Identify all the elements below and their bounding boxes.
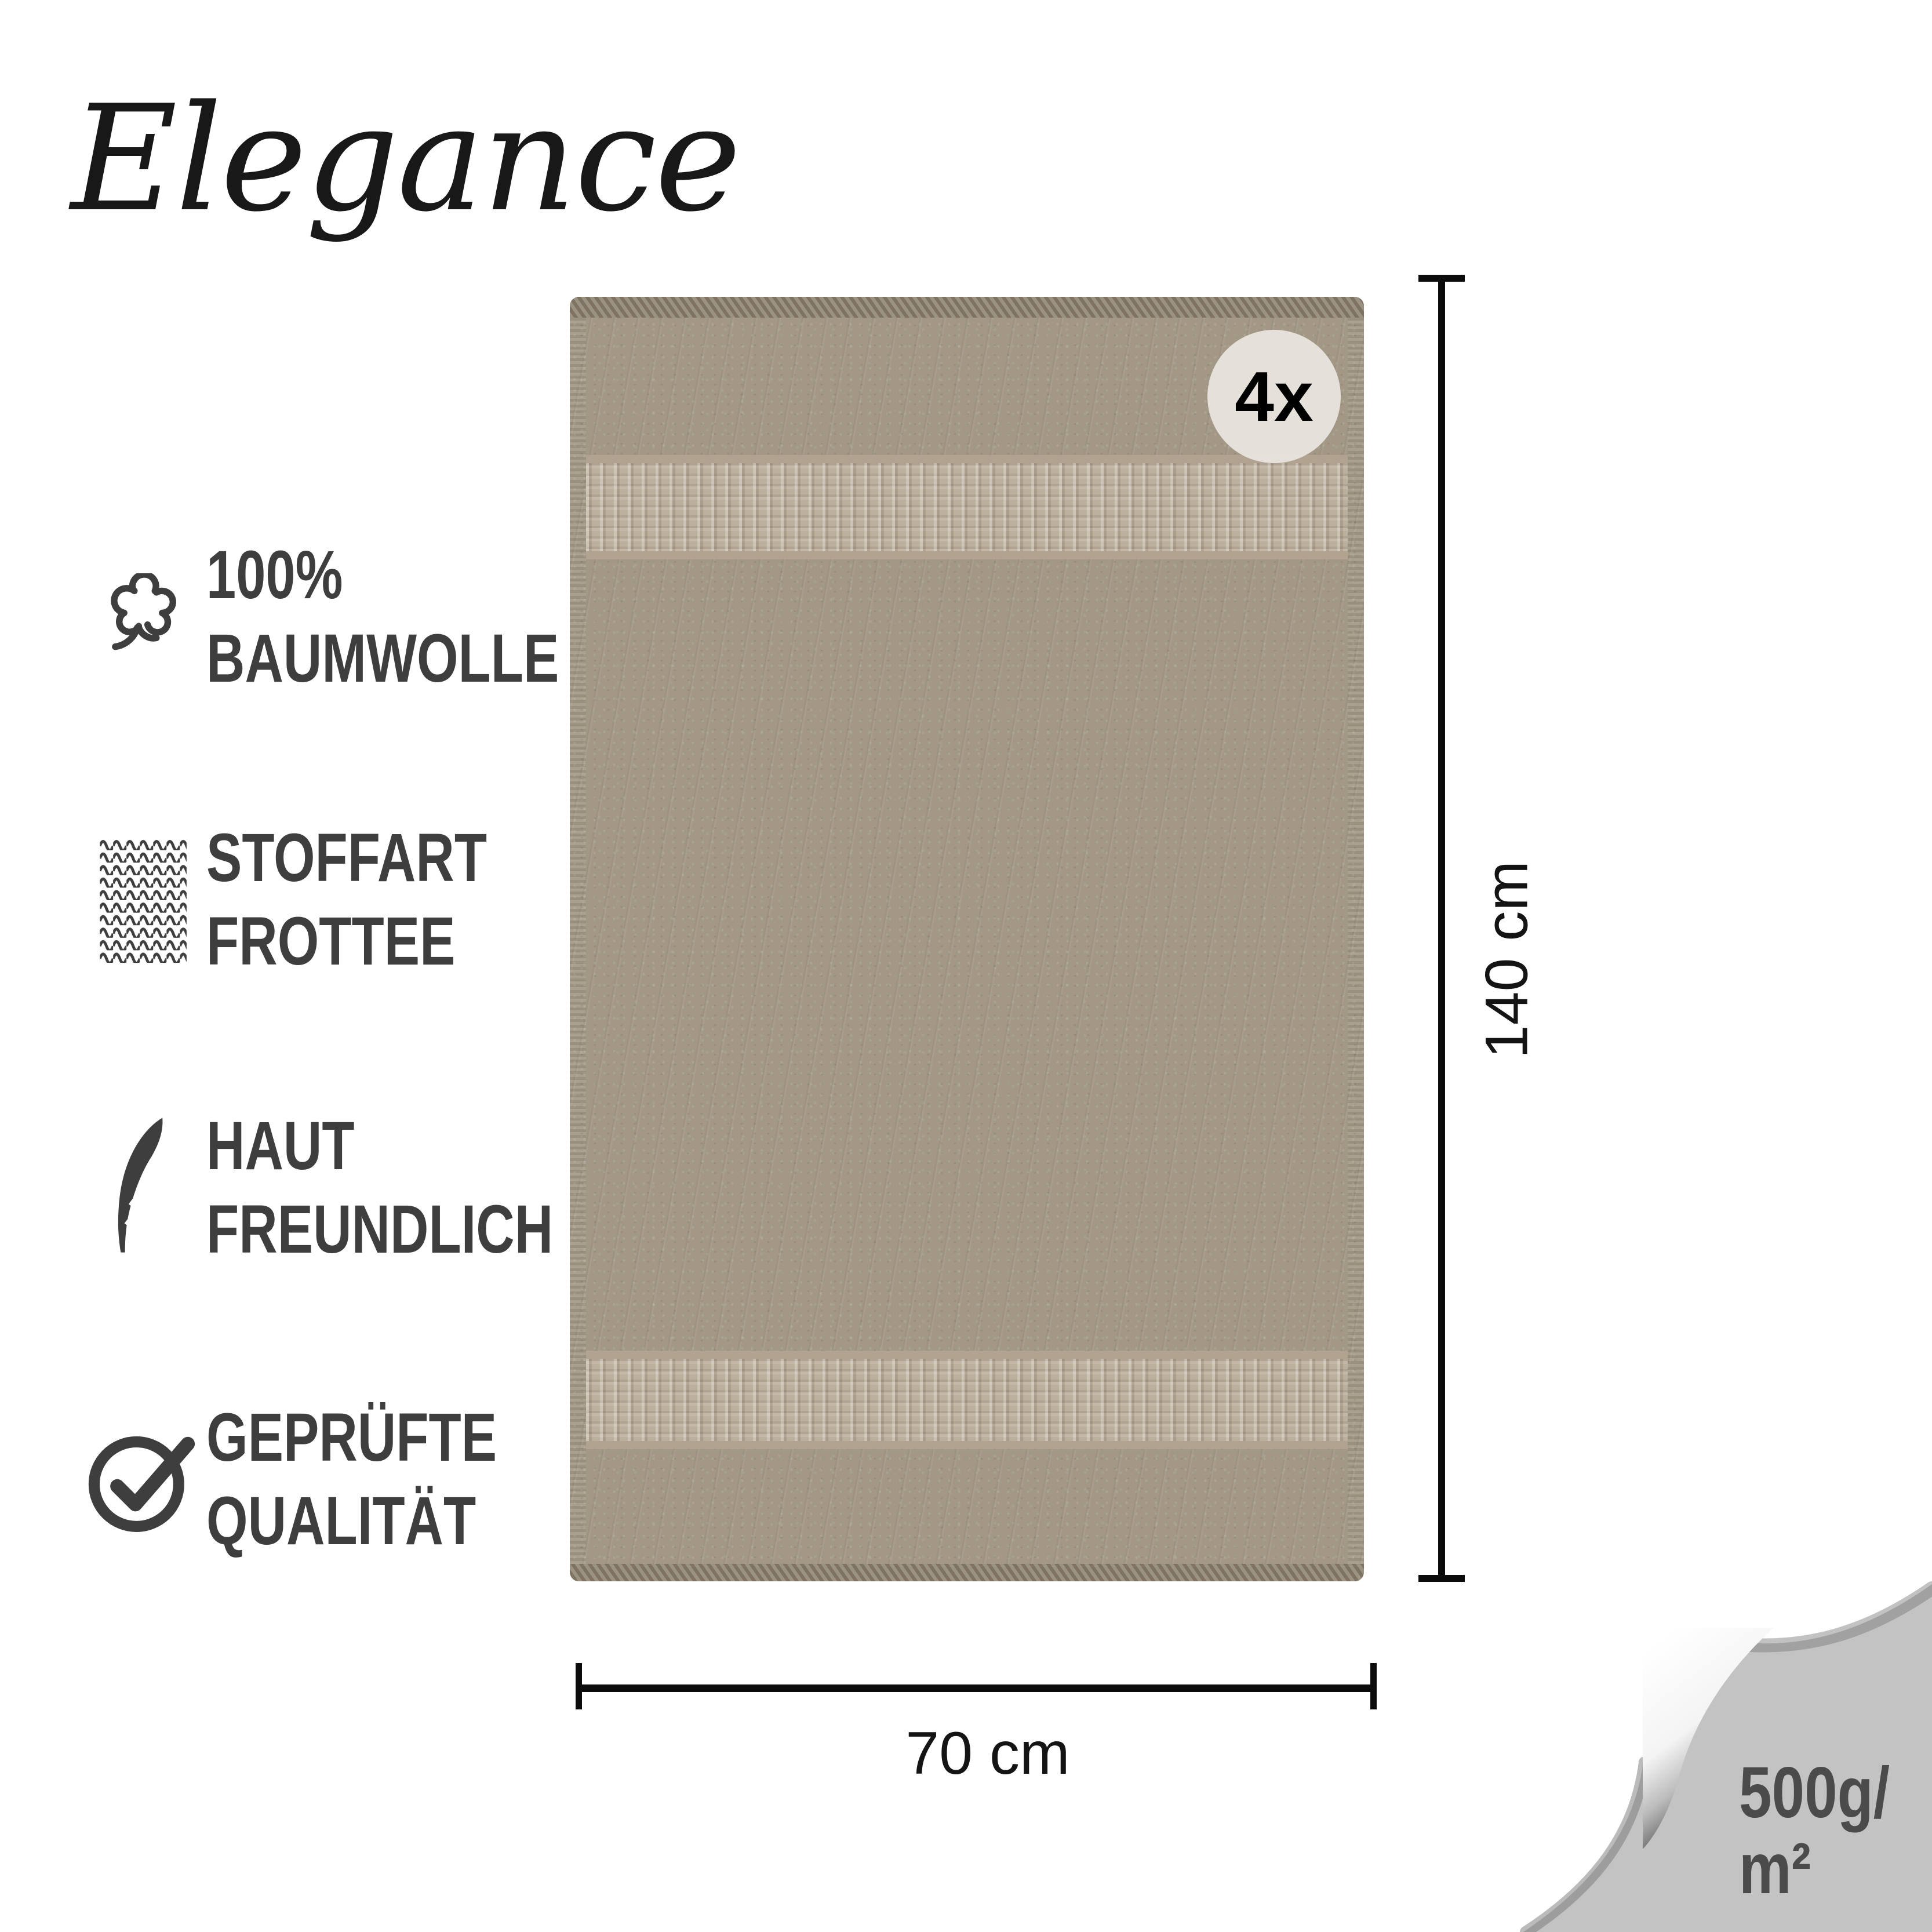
feature-quality-label: GEPRÜFTE QUALITÄT xyxy=(206,1396,497,1563)
towel-border-band-top xyxy=(586,455,1348,559)
product-infographic: Elegance 100% BAUMWOLLE xyxy=(0,0,1932,1932)
brand-logo: Elegance xyxy=(71,74,740,244)
knit-texture-icon xyxy=(80,838,206,963)
width-dimension-label: 70 cm xyxy=(866,1719,1109,1788)
width-dimension-tick-right xyxy=(1370,1663,1377,1709)
feature-cotton-label: 100% BAUMWOLLE xyxy=(206,534,559,701)
feature-line: HAUT xyxy=(206,1105,553,1188)
width-dimension-line xyxy=(576,1684,1377,1692)
check-circle-icon xyxy=(80,1424,206,1537)
cotton-icon xyxy=(80,573,206,661)
feature-line: STOFFART xyxy=(206,817,487,900)
fabric-weight-line2: m² xyxy=(1739,1831,1890,1907)
quantity-badge: 4x xyxy=(1207,330,1341,463)
feature-line: FROTTEE xyxy=(206,900,487,984)
towel-border-band-bottom xyxy=(586,1351,1348,1449)
towel-selvedge-right xyxy=(1348,297,1364,1581)
feature-line: FREUNDLICH xyxy=(206,1188,553,1272)
height-dimension-tick-top xyxy=(1418,275,1465,282)
towel-image xyxy=(570,297,1364,1581)
width-dimension-tick-left xyxy=(576,1663,582,1709)
feather-icon xyxy=(80,1114,206,1263)
towel-selvedge-top xyxy=(570,297,1364,318)
quantity-badge-label: 4x xyxy=(1235,356,1314,437)
feature-line: QUALITÄT xyxy=(206,1480,497,1563)
feature-line: BAUMWOLLE xyxy=(206,617,559,701)
feature-fabric-label: STOFFART FROTTEE xyxy=(206,817,487,984)
towel-selvedge-bottom xyxy=(570,1564,1364,1581)
height-dimension-label: 140 cm xyxy=(1473,838,1542,1082)
height-dimension-line xyxy=(1438,277,1445,1582)
feature-skin-label: HAUT FREUNDLICH xyxy=(206,1105,553,1272)
feature-line: 100% xyxy=(206,534,559,617)
towel-selvedge-left xyxy=(570,297,586,1581)
fabric-weight-line1: 500g/ xyxy=(1739,1755,1890,1831)
feature-line: GEPRÜFTE xyxy=(206,1396,497,1480)
fabric-weight-label: 500g/ m² xyxy=(1739,1755,1890,1908)
